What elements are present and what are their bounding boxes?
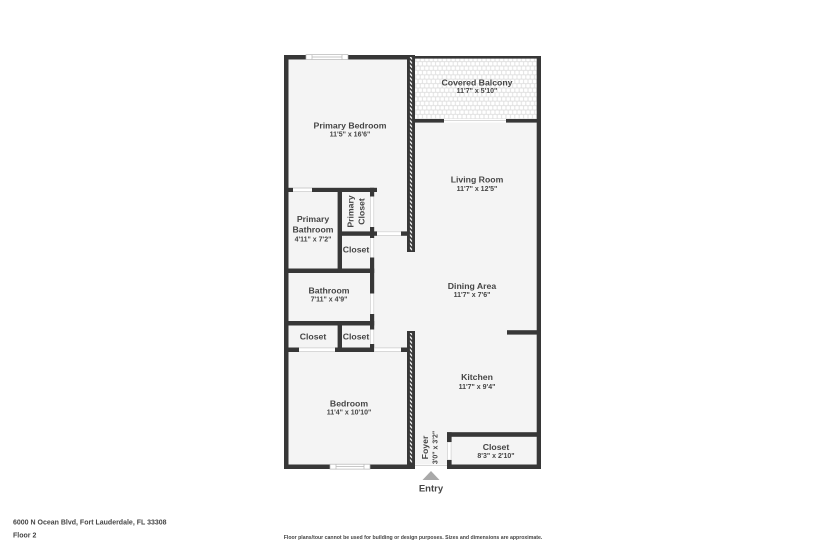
svg-text:Covered Balcony: Covered Balcony xyxy=(442,78,513,88)
svg-text:3'0" x 3'2": 3'0" x 3'2" xyxy=(433,431,440,464)
svg-text:Kitchen: Kitchen xyxy=(461,372,493,382)
svg-text:Floor 2: Floor 2 xyxy=(13,533,36,540)
svg-text:11'7" x 12'5": 11'7" x 12'5" xyxy=(457,186,498,193)
svg-text:Primary: Primary xyxy=(297,214,330,224)
svg-text:Bathroom: Bathroom xyxy=(292,225,333,235)
svg-text:Closet: Closet xyxy=(357,198,367,225)
svg-text:Primary: Primary xyxy=(346,195,356,228)
svg-text:Dining Area: Dining Area xyxy=(448,281,497,291)
svg-text:Primary Bedroom: Primary Bedroom xyxy=(314,121,387,131)
svg-text:7'11" x 4'9": 7'11" x 4'9" xyxy=(311,297,348,304)
svg-text:6000 N Ocean Blvd, Fort Lauder: 6000 N Ocean Blvd, Fort Lauderdale, FL 3… xyxy=(13,520,167,527)
svg-text:Closet: Closet xyxy=(343,332,370,342)
svg-text:Floor plans/tour cannot be use: Floor plans/tour cannot be used for buil… xyxy=(284,535,543,541)
svg-text:Closet: Closet xyxy=(300,332,327,342)
svg-text:11'7" x 9'4": 11'7" x 9'4" xyxy=(459,384,496,391)
svg-text:11'7" x 5'10": 11'7" x 5'10" xyxy=(457,88,498,95)
svg-text:Bedroom: Bedroom xyxy=(330,399,368,409)
svg-text:11'5" x 16'6": 11'5" x 16'6" xyxy=(330,132,371,139)
svg-text:Foyer: Foyer xyxy=(420,435,430,459)
svg-text:Living Room: Living Room xyxy=(451,175,504,185)
svg-text:8'3" x 2'10": 8'3" x 2'10" xyxy=(477,453,514,460)
svg-text:Closet: Closet xyxy=(483,442,510,452)
svg-text:11'7" x 7'6": 11'7" x 7'6" xyxy=(454,292,491,299)
svg-text:Entry: Entry xyxy=(419,484,444,495)
svg-text:4'11" x 7'2": 4'11" x 7'2" xyxy=(295,237,332,244)
svg-text:Closet: Closet xyxy=(343,245,370,255)
svg-text:11'4" x 10'10": 11'4" x 10'10" xyxy=(327,410,372,417)
svg-text:Bathroom: Bathroom xyxy=(308,286,349,296)
